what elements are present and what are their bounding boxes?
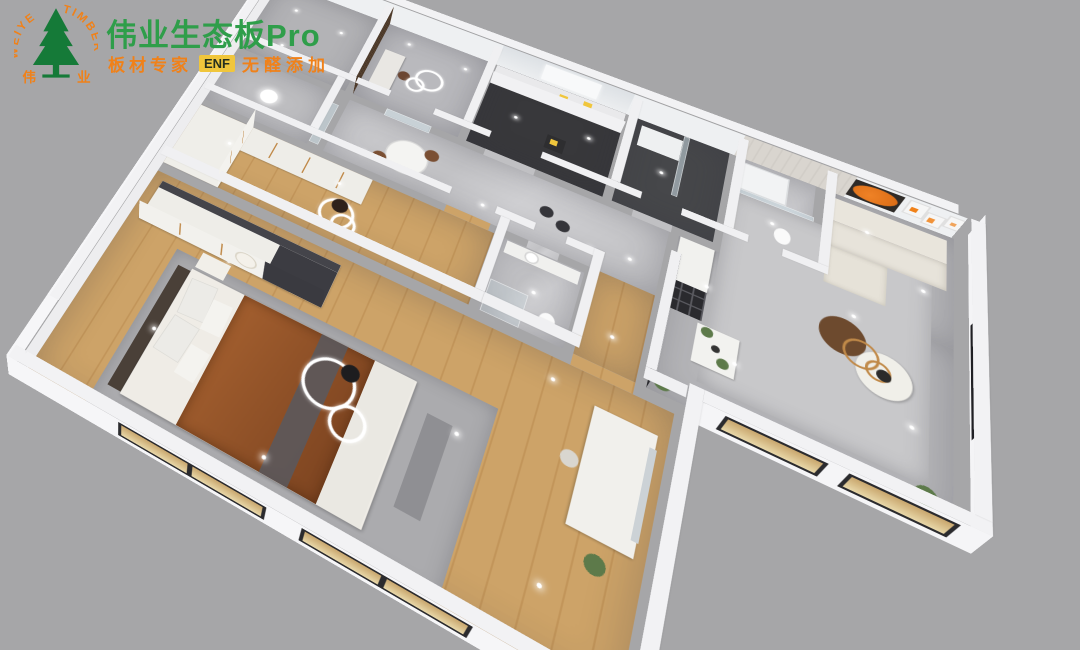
wardrobe-handle — [179, 223, 181, 235]
svg-text:WEIYE: WEIYE — [14, 11, 38, 59]
window — [298, 528, 472, 638]
gallery-art — [926, 217, 935, 223]
tree-logo-icon: WEIYE TIMBER 伟 业 — [14, 4, 98, 84]
brand-logo: WEIYE TIMBER 伟 业 伟业生态板Pro 板材专家 ENF 无醛添加 — [14, 4, 334, 90]
enf-badge: ENF — [199, 55, 235, 72]
apartment-dollhouse — [4, 0, 989, 650]
brand-subtitle-right: 无醛添加 — [242, 51, 330, 76]
wardrobe-handle — [242, 130, 244, 143]
cjk-left: 伟 — [22, 69, 36, 84]
gallery-art — [909, 207, 919, 213]
brand-title: 伟业生态板Pro — [106, 10, 321, 55]
render-canvas: WEIYE TIMBER 伟 业 伟业生态板Pro 板材专家 ENF 无醛添加 — [0, 0, 1080, 650]
wardrobe-handle — [230, 150, 232, 164]
floorplan-3d-view — [60, 50, 924, 570]
brand-subtitle-left: 板材专家 — [108, 51, 192, 76]
wall-segment — [971, 219, 992, 523]
cjk-right: 业 — [77, 70, 91, 84]
arc-text-left: WEIYE — [14, 11, 38, 59]
gallery-art — [949, 222, 957, 227]
wardrobe-handle — [220, 243, 223, 255]
